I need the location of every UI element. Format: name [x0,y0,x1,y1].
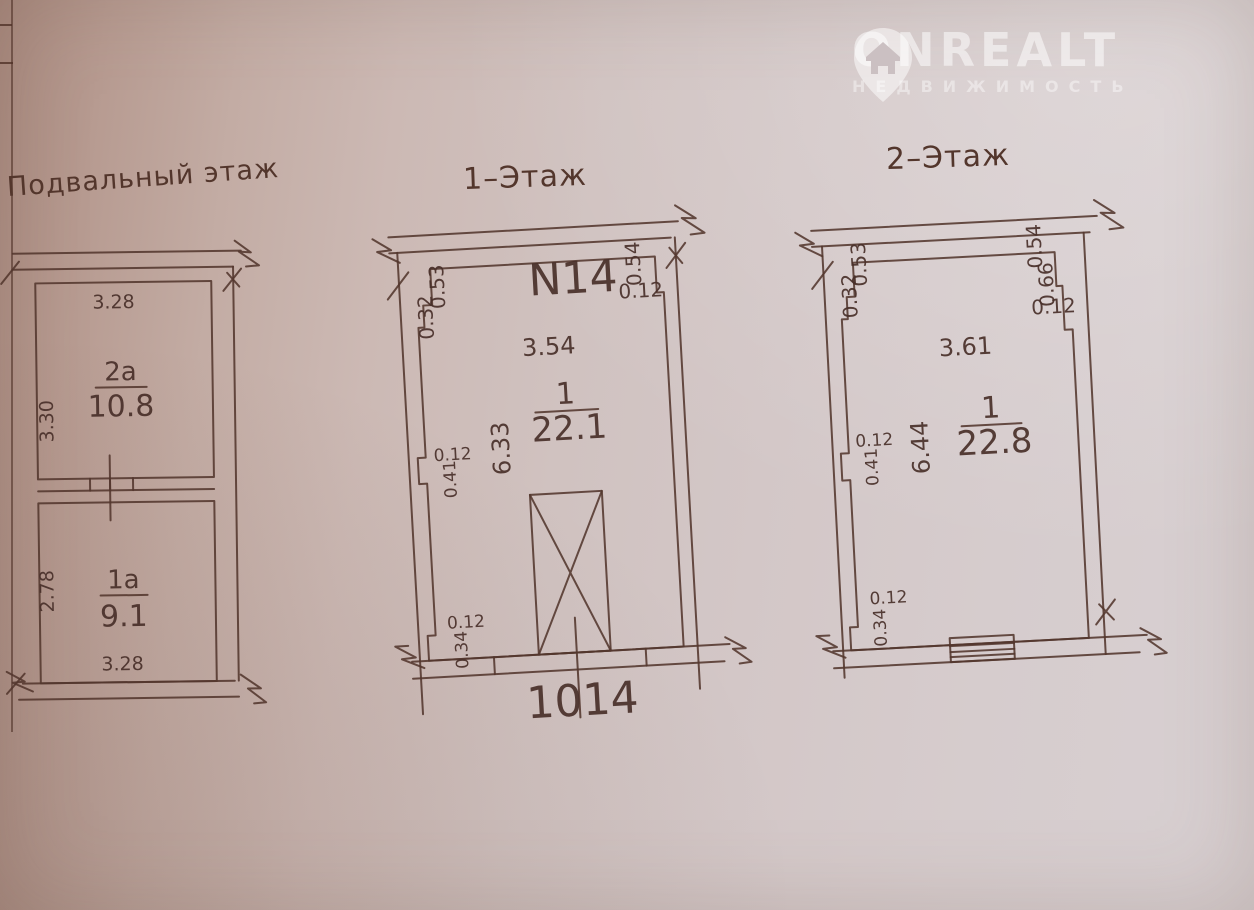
basement-right-wall [233,267,239,681]
basement-dim-bottom: 3.28 [101,653,144,676]
floor2-dim-tr-h: 0.12 [1031,293,1077,319]
floor2-dim-tr-v: 0.54 [1021,223,1047,269]
basement-room2a-area: 10.8 [87,389,154,425]
basement-door-line [110,455,111,520]
page-edge-tick [0,62,13,64]
window-symbol [950,635,1015,662]
basement-room2a-label: 2а [104,357,137,387]
floor2-plan-drawing: 0.53 0.32 0.54 0.66 0.12 3.61 1 22.8 6.4… [793,179,1181,742]
floor1-bottom-number: 1014 [525,672,640,729]
floor2-room-label: 1 [980,390,1001,426]
break-mark [795,231,822,257]
floor1-room-label: 1 [555,376,576,412]
break-mark [1095,599,1116,624]
floor1-right-wall [675,237,700,688]
break-mark [235,240,259,266]
floor1-dim-tr-h: 0.12 [618,277,664,303]
document-photo: ONREALT НЕДВИЖИМОСТЬ Подвальный этаж 1–Э… [0,0,1254,910]
floor2-dim-ml-v: 0.41 [862,448,884,487]
floor2-title: 2–Этаж [885,138,1010,177]
basement-plan-drawing: 3.28 3.30 2а 10.8 1а 9.1 2.78 3.28 [0,228,283,732]
basement-partition-cells [90,478,133,491]
floor1-room-area: 22.1 [530,407,608,451]
onrealt-watermark: ONREALT НЕДВИЖИМОСТЬ [852,26,1134,96]
floor1-title: 1–Этаж [462,158,587,197]
floor1-dim-width: 3.54 [521,331,576,362]
floor2-top-wall [811,216,1097,247]
floor2-room-area: 22.8 [956,421,1034,465]
fraction-line [101,595,148,596]
floor1-unit-number: N14 [527,251,619,307]
floor1-dim-height: 6.33 [486,421,517,476]
floor2-dim-height: 6.44 [905,420,936,475]
floor2-dim-width: 3.61 [938,332,993,363]
basement-dim-left-top: 3.30 [36,400,59,443]
floor2-dim-bl-h: 0.12 [869,587,908,609]
floor2-dim-bl-v: 0.34 [870,608,892,647]
floor2-dim-tl-v2: 0.32 [836,273,862,319]
basement-dim-top: 3.28 [92,291,135,314]
basement-top-wall [13,251,241,270]
fraction-line [96,387,147,388]
break-mark [725,636,751,664]
page-edge-tick [0,24,12,26]
basement-dim-left-bottom: 2.78 [36,570,59,613]
floor1-dim-bl-v: 0.34 [451,630,473,669]
break-mark [372,238,399,264]
basement-room1a-label: 1а [107,565,140,595]
break-mark [816,635,845,659]
basement-title: Подвальный этаж [6,153,280,203]
basement-partition-wall [38,489,214,491]
break-mark [1094,199,1124,230]
floor1-dim-tl-v2: 0.32 [413,295,439,341]
break-mark [1,262,19,284]
break-mark [1140,627,1166,655]
basement-room1a-area: 9.1 [100,599,148,635]
floor1-dim-ml-v: 0.41 [440,460,462,499]
logo-house-pin-icon [852,26,914,104]
floor1-plan-drawing: N14 0.53 0.32 0.54 0.12 3.54 1 22.1 6.33… [369,188,761,787]
break-mark [675,204,705,236]
break-mark [241,674,266,703]
floor1-dim-bl-h: 0.12 [447,612,486,634]
